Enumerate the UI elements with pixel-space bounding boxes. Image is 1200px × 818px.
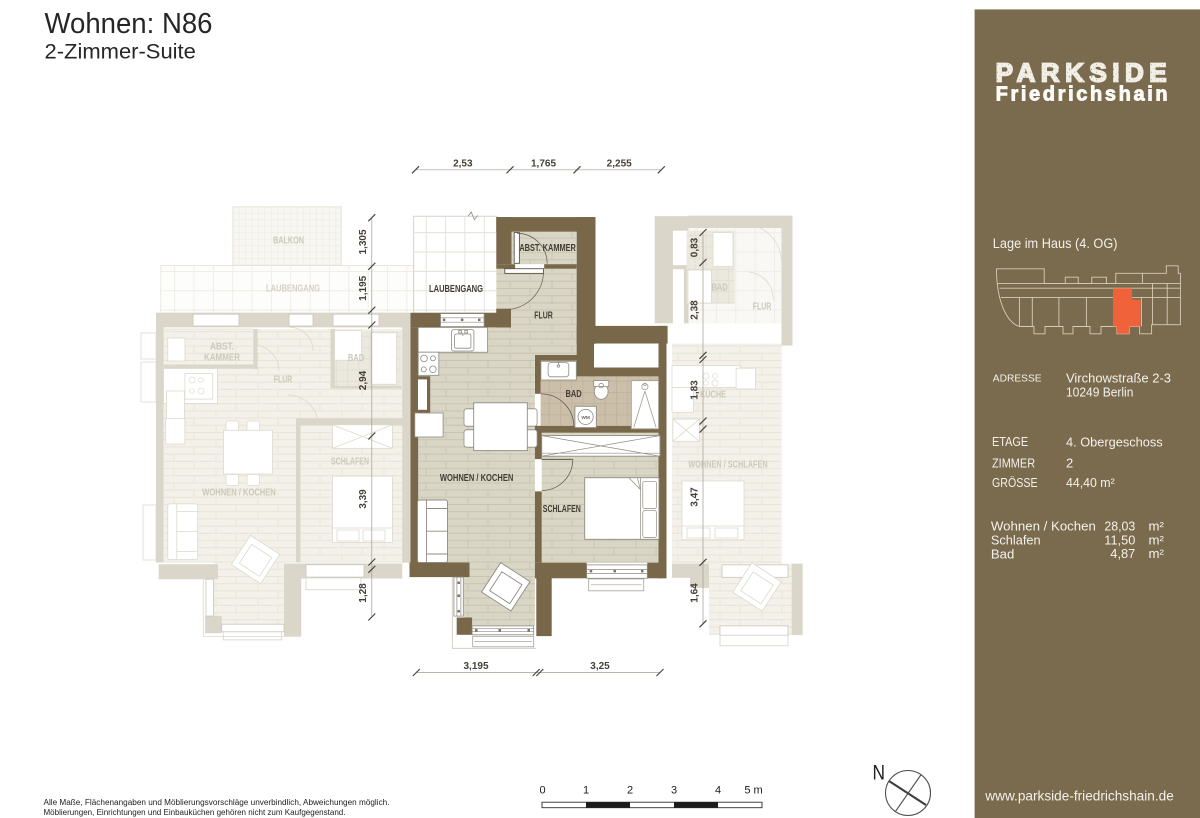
svg-text:1,64: 1,64	[690, 583, 701, 603]
svg-text:3,25: 3,25	[590, 661, 610, 672]
svg-text:ADRESSE: ADRESSE	[993, 373, 1042, 385]
svg-text:3: 3	[671, 785, 677, 797]
svg-text:1,28: 1,28	[358, 583, 369, 603]
svg-text:GRÖSSE: GRÖSSE	[992, 476, 1038, 490]
svg-text:BAD: BAD	[565, 389, 582, 400]
svg-text:2,94: 2,94	[358, 370, 369, 390]
svg-text:m²: m²	[1149, 546, 1165, 561]
svg-text:BALKON: BALKON	[273, 236, 304, 247]
svg-text:WOHNEN / SCHLAFEN: WOHNEN / SCHLAFEN	[688, 460, 767, 471]
svg-text:Möblierungen, Einrichtungen un: Möblierungen, Einrichtungen und Einbaukü…	[44, 808, 346, 817]
svg-text:Schlafen: Schlafen	[991, 533, 1041, 548]
svg-text:N: N	[873, 761, 886, 784]
svg-text:2,255: 2,255	[607, 158, 632, 169]
svg-text:1,765: 1,765	[531, 158, 556, 169]
svg-text:KÜCHE: KÜCHE	[700, 388, 726, 401]
svg-text:FLUR: FLUR	[534, 311, 553, 322]
svg-text:1: 1	[583, 785, 589, 797]
svg-text:3,39: 3,39	[358, 489, 369, 509]
svg-text:ZIMMER: ZIMMER	[992, 456, 1035, 470]
svg-text:3,195: 3,195	[463, 661, 488, 672]
svg-text:1,83: 1,83	[690, 380, 701, 400]
svg-text:LAUBENGANG: LAUBENGANG	[429, 284, 483, 295]
svg-text:0,83: 0,83	[690, 237, 701, 257]
svg-text:WOHNEN / KOCHEN: WOHNEN / KOCHEN	[440, 473, 514, 484]
svg-text:2-Zimmer-Suite: 2-Zimmer-Suite	[45, 39, 196, 63]
svg-text:BAD: BAD	[348, 353, 365, 364]
svg-text:www.parkside-friedrichshain.de: www.parkside-friedrichshain.de	[984, 788, 1174, 804]
svg-text:ABST. KAMMER: ABST. KAMMER	[519, 243, 576, 254]
svg-text:BAD: BAD	[711, 283, 728, 294]
svg-text:SCHLAFEN: SCHLAFEN	[543, 504, 581, 515]
svg-text:Friedrichshain: Friedrichshain	[996, 84, 1168, 106]
svg-text:4. Obergeschoss: 4. Obergeschoss	[1066, 435, 1163, 450]
svg-text:1,195: 1,195	[358, 275, 369, 300]
svg-text:0: 0	[539, 785, 545, 797]
svg-text:2: 2	[1066, 455, 1073, 470]
svg-text:FLUR: FLUR	[274, 375, 293, 386]
svg-text:10249 Berlin: 10249 Berlin	[1066, 385, 1133, 400]
svg-text:KAMMER: KAMMER	[204, 353, 241, 364]
svg-text:44,40 m²: 44,40 m²	[1066, 475, 1115, 490]
svg-text:4,87: 4,87	[1110, 546, 1135, 561]
svg-text:2,53: 2,53	[453, 158, 473, 169]
svg-text:Alle Maße, Flächenangaben und: Alle Maße, Flächenangaben und Möblierung…	[44, 798, 390, 807]
svg-text:2,38: 2,38	[690, 300, 701, 320]
svg-text:Wohnen / Kochen: Wohnen / Kochen	[991, 519, 1096, 534]
svg-text:Bad: Bad	[991, 546, 1014, 561]
svg-text:4: 4	[715, 785, 721, 797]
svg-text:WOHNEN / KOCHEN: WOHNEN / KOCHEN	[202, 488, 276, 499]
svg-text:Virchowstraße 2-3: Virchowstraße 2-3	[1066, 371, 1171, 386]
svg-text:Lage im Haus (4. OG): Lage im Haus (4. OG)	[993, 236, 1118, 251]
svg-text:m²: m²	[1149, 518, 1165, 533]
svg-text:ETAGE: ETAGE	[992, 435, 1028, 449]
svg-text:WM: WM	[581, 415, 590, 421]
svg-text:Wohnen: N86: Wohnen: N86	[45, 8, 213, 40]
svg-text:ABST.: ABST.	[210, 342, 234, 353]
svg-text:3,47: 3,47	[690, 487, 701, 507]
svg-text:1,305: 1,305	[358, 229, 369, 254]
svg-text:28,03: 28,03	[1104, 518, 1135, 533]
svg-text:5 m: 5 m	[744, 785, 762, 797]
svg-text:2: 2	[627, 785, 633, 797]
svg-text:LAUBENGANG: LAUBENGANG	[266, 284, 320, 295]
svg-text:SCHLAFEN: SCHLAFEN	[331, 457, 369, 468]
svg-text:FLUR: FLUR	[753, 302, 772, 313]
